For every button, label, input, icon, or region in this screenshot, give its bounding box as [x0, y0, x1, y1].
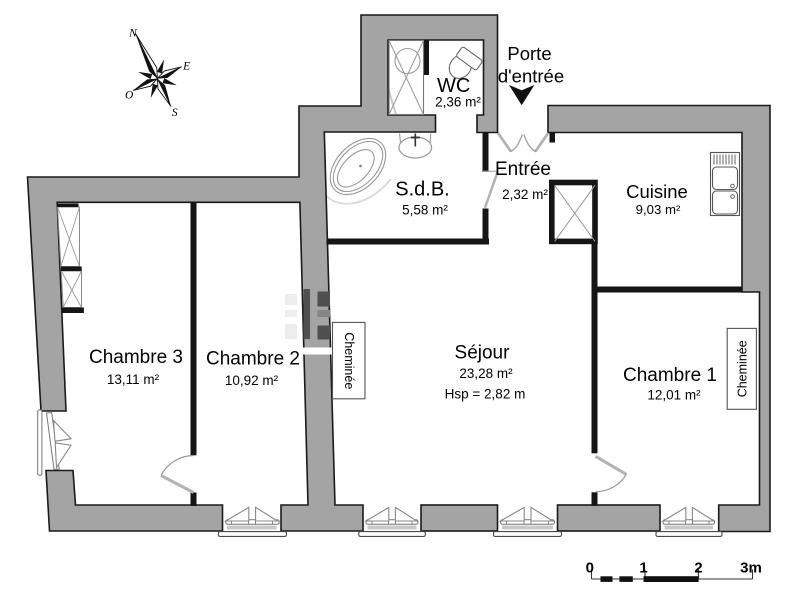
svg-text:S.d.B.: S.d.B. — [395, 179, 449, 201]
svg-text:E: E — [182, 61, 190, 73]
svg-text:O: O — [125, 90, 134, 102]
svg-text:0: 0 — [586, 560, 594, 577]
svg-text:Cheminée: Cheminée — [342, 332, 356, 389]
svg-text:13,11 m²: 13,11 m² — [107, 372, 160, 387]
svg-text:N: N — [128, 28, 138, 40]
svg-text:2,32 m²: 2,32 m² — [502, 187, 548, 202]
svg-text:d'entrée: d'entrée — [498, 66, 564, 87]
svg-text:23,28 m²: 23,28 m² — [459, 366, 513, 381]
svg-text:Chambre 3: Chambre 3 — [89, 347, 183, 368]
svg-text:2: 2 — [694, 560, 702, 577]
svg-text:12,01 m²: 12,01 m² — [647, 388, 701, 403]
svg-text:1: 1 — [639, 560, 647, 577]
svg-text:9,03 m²: 9,03 m² — [636, 202, 681, 217]
svg-text:3m: 3m — [740, 560, 762, 577]
svg-text:Hsp = 2,82 m: Hsp = 2,82 m — [445, 387, 526, 402]
svg-text:S: S — [172, 107, 178, 119]
svg-text:Séjour: Séjour — [455, 343, 511, 364]
svg-text:5,58 m²: 5,58 m² — [402, 203, 448, 218]
svg-text:Cheminée: Cheminée — [735, 340, 749, 397]
svg-text:Cuisine: Cuisine — [626, 181, 688, 202]
svg-text:10,92 m²: 10,92 m² — [225, 373, 279, 388]
svg-text:Entrée: Entrée — [495, 159, 551, 180]
svg-text:Chambre 2: Chambre 2 — [206, 349, 300, 370]
svg-text:2,36 m²: 2,36 m² — [435, 95, 481, 110]
svg-text:Porte: Porte — [507, 43, 551, 64]
svg-text:Chambre 1: Chambre 1 — [623, 365, 717, 386]
